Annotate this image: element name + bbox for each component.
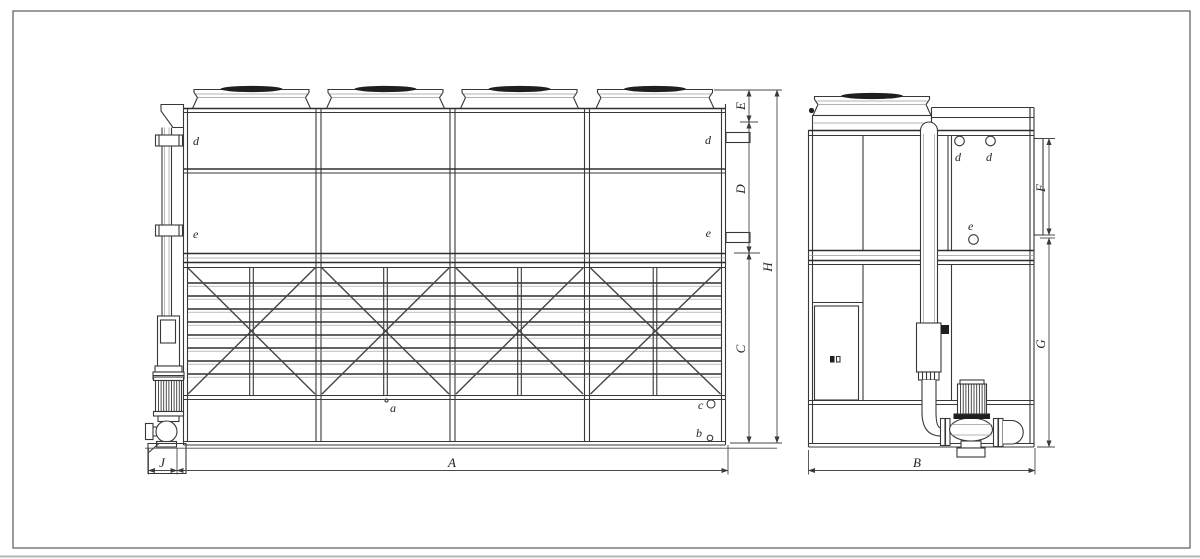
pipe-end-cap	[1003, 421, 1023, 445]
label-e-right: e	[706, 226, 712, 240]
label-d2-side: d	[986, 150, 993, 164]
technical-drawing: d d e e a b c E D C H	[0, 0, 1200, 559]
label-b: b	[696, 426, 702, 440]
label-c: c	[698, 398, 704, 412]
dimension-G-label: G	[1033, 339, 1048, 349]
label-d-left: d	[193, 134, 200, 148]
dimension-E-label: E	[733, 102, 748, 111]
dimension-B-label: B	[913, 455, 921, 470]
pipe-flange-ribbed	[919, 372, 940, 380]
junction-box	[941, 325, 949, 334]
access-door	[815, 306, 859, 400]
label-d1-side: d	[955, 150, 962, 164]
fan-bolt-dot	[809, 108, 814, 113]
label-e-side: e	[968, 219, 974, 233]
label-d-right: d	[705, 133, 712, 147]
pipe-sleeve	[917, 323, 942, 372]
pump-volute	[156, 421, 177, 442]
pump-suction-flange	[146, 424, 154, 440]
door-handle	[830, 356, 835, 363]
dimension-D-label: D	[733, 184, 748, 195]
pump-volute-side	[950, 418, 993, 441]
label-a: a	[390, 401, 396, 415]
dimension-A-label: A	[447, 455, 456, 470]
dimension-F-label: F	[1033, 183, 1048, 193]
drawing-sheet: d d e e a b c E D C H	[0, 0, 1200, 559]
pump-support	[961, 441, 981, 448]
dimension-C-label: C	[733, 344, 748, 353]
label-e-left: e	[193, 227, 199, 241]
dimension-H-label: H	[760, 262, 775, 273]
